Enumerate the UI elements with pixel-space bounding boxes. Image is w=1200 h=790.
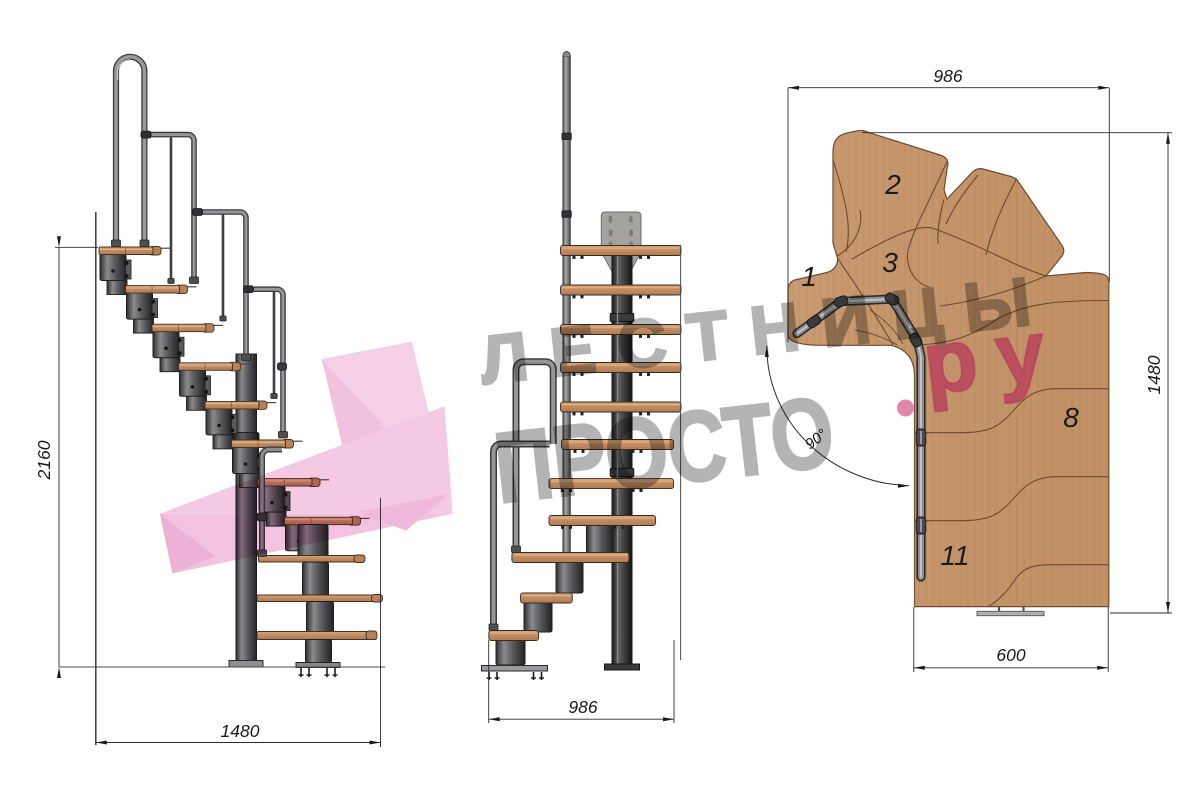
svg-text:986: 986 [933, 66, 962, 86]
svg-text:600: 600 [996, 645, 1025, 665]
svg-text:986: 986 [568, 697, 597, 717]
svg-text:11: 11 [940, 540, 969, 571]
svg-text:8: 8 [1063, 402, 1079, 433]
svg-text:2: 2 [884, 169, 901, 200]
svg-text:ру: ру [918, 299, 1070, 413]
svg-text:3: 3 [882, 247, 898, 278]
svg-text:ПРОСТО: ПРОСТО [489, 376, 839, 525]
svg-text:2160: 2160 [34, 440, 54, 480]
svg-text:1480: 1480 [1144, 355, 1164, 394]
svg-text:1480: 1480 [221, 721, 260, 741]
